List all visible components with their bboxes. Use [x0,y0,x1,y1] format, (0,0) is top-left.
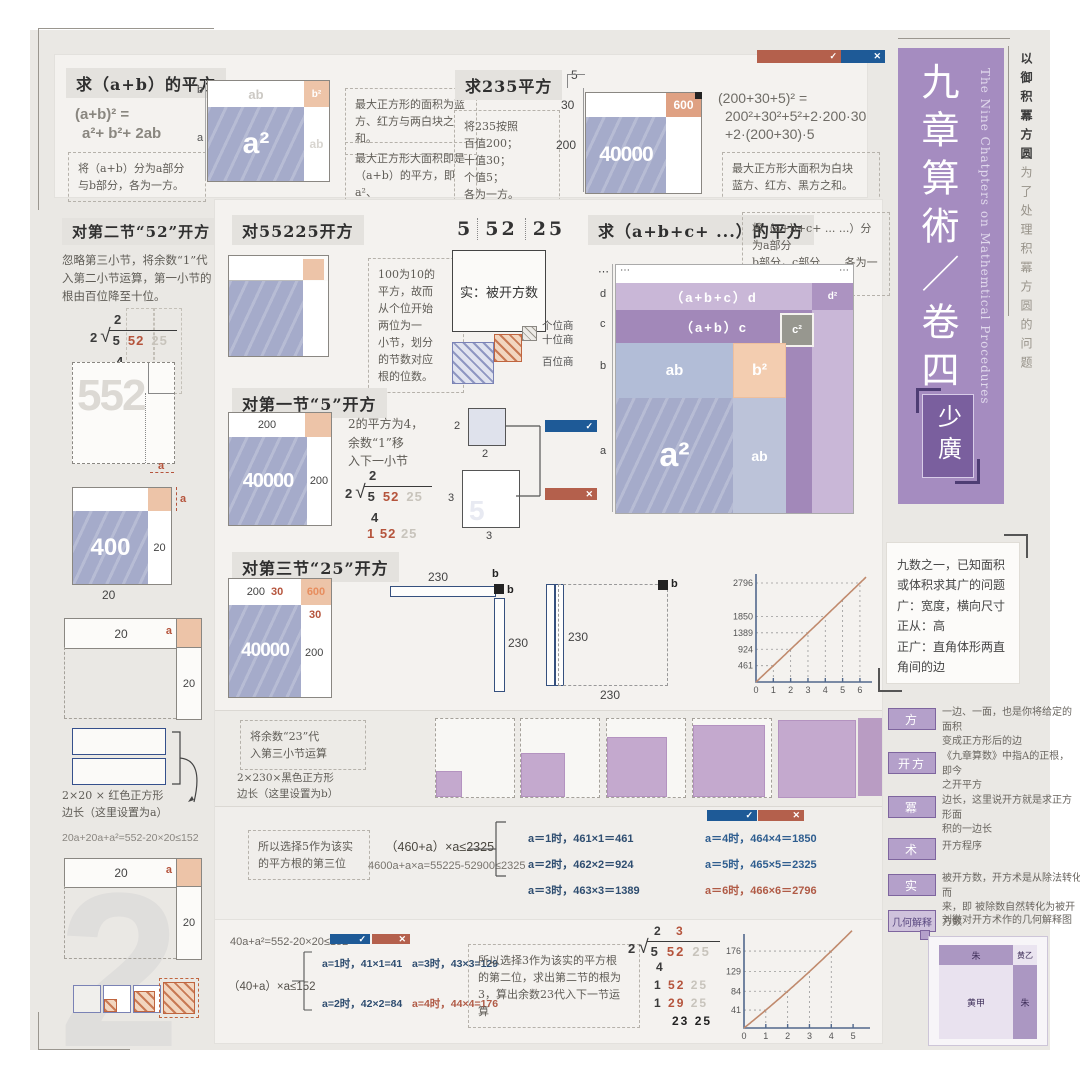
glossary-term: 冪 [905,799,919,816]
division-quotient: 2 [114,312,121,327]
square-235-diagram: 600 40000 [585,92,702,194]
dim-2-bottom: 2 [482,448,488,460]
b2-label: b² [312,89,321,100]
label-a2: a² [659,436,689,475]
formula-ab-1: (a+b)² = [75,106,129,123]
label-bottom-20: 20 [102,588,115,602]
frame-line [1008,46,1009,316]
svg-text:2: 2 [788,685,793,695]
digit-group: 1 [654,996,663,1010]
strip-rect-2 [72,758,166,785]
svg-text:3: 3 [805,685,810,695]
red-cross-bar: ✕ [758,810,804,821]
progress-box-5 [778,720,856,798]
purple-fill [607,737,667,797]
growth-square-4 [163,982,195,1014]
glossary-term: 术 [905,841,919,858]
label-ab-c: （a+b）c [680,317,748,336]
red-hatch-fill [134,991,155,1012]
abc-square-diagram: ⋯ ⋯ （a+b+c）d d² （a+b）c c² ab b² a² ab [615,264,854,514]
progress-box-3 [606,718,686,798]
dots-right: ⋯ [839,265,849,276]
badge-corner [916,388,941,413]
rect-right-col-20: 20 [176,647,202,720]
rect-red-corner [148,488,171,511]
svg-text:41: 41 [731,1005,741,1015]
title-banner: 九章算術／卷四 The Nine Chatpters on Mathemtica… [898,48,1004,504]
tagline-rest: 为了处理积冪方圆的问题 [1019,166,1033,375]
eq-235-line3: +2·(200+30)·5 [725,126,815,142]
label-30: 30 [309,609,321,621]
case-41: a=1时，41×1=41 [322,956,402,971]
frame-line [38,28,214,29]
svg-text:0: 0 [741,1031,746,1041]
shi-label: 实：被开方数 [460,282,538,301]
dim-3: 3 [448,492,454,504]
guang-infobox-text: 九数之一，已知面积 或体积求其广的问题 广：宽度，横向尺寸 正从：高 正广：直角… [887,543,1019,689]
inner-line [148,363,149,393]
division-quotient-3: 3 [676,924,683,938]
ghost-552-square: 552 [72,362,175,464]
note-white-sum: 最大正方形大面积为白块 蓝方、红方、黑方之和。 [722,152,880,202]
tagline-vertical: 以御积冪方圆为了处理积冪方圆的问题 [1018,52,1035,382]
legend-tens-square [494,334,522,362]
dim-line [567,74,568,88]
division-radicand-row: 2 √ 55225 [345,486,432,504]
title-english: The Nine Chatpters on Mathemtical Proced… [978,68,992,408]
gnomon1-vbar [494,598,505,692]
gnomon1-230-top: 230 [428,570,448,584]
ab-right-rect: ab [304,107,329,181]
division-prefix: 2 [90,330,97,345]
division-prefix: 2 [345,486,352,501]
division-remainder-1: 1 52 25 [654,978,708,992]
division-remainder-2: 1 29 25 [654,996,708,1010]
division-remainder-3: 23 25 [672,1014,712,1028]
rect-red-corner [176,618,202,649]
rect-ab-top: ab [616,343,733,398]
division-prefix: 2 [628,941,635,956]
digit-group: 52 [383,489,399,504]
svg-text:1850: 1850 [733,611,753,621]
rect-white-top [229,256,303,281]
dim-a-right: a [180,493,186,505]
note-235-split: 将235按照 百值200； 十值30； 个值5； 各为一方。 [454,110,560,211]
formula-ab-2: a²+ b²+ 2ab [82,125,161,142]
digit-group: 1 [367,526,375,541]
svg-text:0: 0 [753,685,758,695]
rect-top: 200 30 [229,579,301,605]
svg-text:3: 3 [807,1031,812,1041]
digit-group: 25 [691,978,708,992]
gnomon2-bar1 [546,584,555,686]
red-check-bar: ✓ [757,50,841,63]
rect-white-right [666,117,701,193]
glossary-desc-jihe: 刘徽对开方术作的几何解释图 [942,914,1080,929]
rect-white-top [73,488,148,511]
check-icon: ✓ [358,934,366,945]
svg-text:1: 1 [771,685,776,695]
progress-box-1 [435,718,515,798]
digit-group: 25 [692,944,710,959]
guang-infobox: 九数之一，已知面积 或体积求其广的问题 广：宽度，横向尺寸 正从：高 正广：直角… [886,542,1020,684]
dashed-edge [64,886,66,958]
label-ab: ab [751,448,767,464]
cross-icon: ✕ [792,810,800,821]
case-a5: a＝5时，465×5＝2325 [705,856,817,872]
dim-a-line [150,472,174,474]
gnomon2-230-left: 230 [568,630,588,644]
digit-52: 52 [477,218,524,240]
infobox-corner [1004,534,1028,558]
dim-235-30: 30 [561,98,574,112]
svg-text:924: 924 [738,644,753,654]
note-choose-3: 所以选择3作为该实的平方根 的第二位，求出第二节的根为 3，算出余数23代入下一… [468,944,640,1028]
digit-25: 25 [525,218,572,240]
cross-icon: ✕ [585,489,593,500]
section-title-55225: 对55225开方 [232,215,364,245]
label-200: 200 [305,647,323,659]
glossary-term: 开方 [898,755,926,772]
blue-cross-bar: ✕ [841,50,885,63]
inner-line [148,393,174,394]
ghost-552-label: 552 [77,371,144,421]
gnomon1-corner [494,584,504,594]
label-20: 20 [114,627,127,641]
case-bracket-2 [292,950,316,1012]
label-20: 20 [114,866,127,880]
black-corner-square [695,92,702,99]
poster-background: 1 2 3 求（a+b）的平方 (a+b)² = a²+ b²+ 2ab 将（a… [30,30,1050,1050]
label-30: 30 [271,586,283,598]
svg-text:84: 84 [731,986,741,996]
section-title-235: 求235平方 [455,70,562,100]
dim-3-bottom: 3 [486,530,492,542]
case-42: a=2时，42×2=84 [322,996,402,1011]
square-55225-diagram [228,255,329,357]
case-bracket [468,820,508,880]
gnomon2-corner [658,580,668,590]
label-40000: 40000 [243,470,294,493]
division-radicand-row: 2 √ 55225 [90,330,177,348]
square-5-diagram: 200 40000 200 [228,412,332,526]
square-c2: c² [780,313,814,347]
dim-235-200: 200 [556,138,576,152]
digit-group: 52 [380,526,396,541]
digit-5: 5 [450,218,477,240]
rect-top-200: 200 [229,413,305,437]
b2-square: b² [304,81,329,107]
frame-line [898,38,1010,39]
division-subtract: 4 [371,510,378,525]
label-c2: c² [792,324,802,336]
svg-text:461: 461 [738,661,753,671]
watermark-2: 2 [58,860,180,1079]
square-400-diagram: 400 20 [72,487,172,585]
gnomon1-b-top: b [492,568,499,580]
progress-box-6 [858,718,882,796]
check-icon: ✓ [585,421,593,432]
strip-rect-1 [72,728,166,755]
ab-square-diagram: ab b² a² ab [207,80,330,182]
digit-group: 52 [128,333,144,348]
geo-zhu-right: 朱 [1013,965,1037,1039]
shaoguang-badge: 少廣 [922,394,974,478]
legend-units-label: 个位商 [542,318,574,333]
digit-group: 5 [368,489,376,504]
svg-text:4: 4 [829,1031,834,1041]
dashed-edge [64,718,176,720]
label-a: a [166,864,172,876]
growth-square-3 [133,985,161,1013]
label-40000: 40000 [241,640,289,662]
note-choose-5: 所以选择5作为该实 的平方根的第三位 [248,830,370,880]
frame-line [38,1012,39,1050]
svg-text:5: 5 [851,1031,856,1041]
square-b2: b² [733,343,786,398]
dim-a-top: a [158,460,164,472]
shi-box: 实：被开方数 [452,250,546,332]
growth-square-2 [103,985,131,1013]
rect-red-corner [176,858,202,888]
digit-groups-55225: 5 52 25 [450,218,572,240]
rect-40000: 40000 [229,437,307,525]
division-radicand-row: 2 √ 55225 [628,941,720,959]
digit-group: 25 [151,333,167,348]
axis-b: b [600,360,606,372]
svg-text:4: 4 [823,685,828,695]
frame-line [38,28,39,210]
division-quotient: 2 [369,468,376,483]
poster-page: 1 2 3 求（a+b）的平方 (a+b)² = a²+ b²+ 2ab 将（a… [0,0,1080,1079]
note-ab-split: 将（a+b）分为a部分 与b部分，各为一方。 [68,152,206,202]
glossary-desc-mi: 边长，这里说开方就是求正方形面 积的一边长 [942,794,1076,838]
rect-white-right [303,281,328,356]
geo-huang-yi: 黄乙 [1013,945,1037,965]
brace-note: 2×20 × 红色正方形 边长（这里设置为a） [62,787,168,821]
note-52: 忽略第三小节，将余数“1”代 入第二小节运算，第一小节的 根由百位降至十位。 [62,252,224,305]
division-subtract: 4 [656,960,663,974]
glossary-term: 实 [905,877,919,894]
digit-group: 25 [695,1014,712,1028]
red-cross-bar: ✕ [372,934,410,944]
label-600: 600 [307,586,325,598]
square-root-growth-chart-1: 4619241389185027960123456 [722,566,874,698]
digit-group: 1 [654,978,663,992]
gnomon1-230-right: 230 [508,636,528,650]
ghost-5: 5 [469,495,485,527]
geo-zhu-top: 朱 [939,945,1013,965]
cross-icon: ✕ [873,51,881,62]
axis-line [612,264,613,512]
glossary-badge-shu: 术 [888,838,936,860]
red-cross-bar: ✕ [545,488,597,500]
inner-dotted-line [145,393,147,463]
glossary-term: 方 [905,711,919,728]
glossary-desc-fang: 一边、一面，也是你将给定的面积 变成正方形后的边 [942,706,1076,750]
label-abc-d: （a+b+c）d [670,287,758,306]
long-division-5: 2 2 √ 55225 4 1 52 25 [345,468,465,548]
glossary-desc-shu: 开方程序 [942,840,1076,855]
label-ab: ab [666,362,684,379]
candidate-square-2 [468,408,506,446]
purple-fill [436,771,462,797]
axis-d: d [600,288,606,300]
blue-check-bar: ✓ [545,420,597,432]
square-25-diagram: 200 30 600 40000 30 200 [228,578,332,698]
svg-text:6: 6 [857,685,862,695]
ineq-552: 20a+20a+a²=552-20×20≤152 [62,832,199,844]
purple-fill [693,725,765,797]
rect-red-corner [303,259,324,280]
label-a: a [166,625,172,637]
label-200: 200 [247,586,265,598]
progress-box-2 [520,718,600,798]
rect-blue-main [229,281,303,356]
label-600: 600 [673,98,693,112]
dim-235-5: 5 [571,68,578,82]
legend-hundreds-square [452,342,494,384]
dim-label-b: b [197,84,203,96]
dim-line [567,74,585,75]
badge-corner [955,459,980,484]
rect-40000: 40000 [586,117,666,193]
axis-dots: ⋯ [598,265,609,278]
division-quotient-2: 2 [654,924,661,938]
dashed-edge [64,958,176,960]
rect-right-200: 200 [307,437,331,525]
rect-top-20: 20a [64,858,178,888]
check-icon: ✓ [745,810,753,821]
digit-group: 5 [651,944,660,959]
glossary-desc-kaifang: 《九章算数》中指A的正根，即今 之开平方 [942,750,1076,794]
section-title-52: 对第二节“52”开方 [62,218,220,245]
gnomon1-hbar [390,586,496,597]
red-hatch-fill [104,999,117,1012]
geo-huang-jia: 黄甲 [939,965,1013,1039]
rect-40000: 40000 [229,605,301,697]
label-d2: d² [828,291,837,302]
brace-arrow [168,728,214,808]
dim-line [583,88,584,192]
legend-tens-label: 十位商 [542,332,574,347]
square-d2: d² [812,283,853,310]
digit-group: 25 [401,526,417,541]
glossary-badge-kaifang: 开方 [888,752,936,774]
strip-d-vertical [812,310,853,513]
svg-text:1: 1 [763,1031,768,1041]
svg-text:2796: 2796 [733,578,753,588]
infobox-corner [878,668,902,692]
svg-text:129: 129 [726,967,741,977]
ab-top-rect: ab [208,81,304,107]
glossary-badge-mi: 冪 [888,796,936,818]
rect-top-20: 20a [64,618,178,649]
a2-label: a² [243,127,270,161]
check-icon: ✓ [829,51,837,62]
digit-group: 23 [672,1014,689,1028]
svg-text:176: 176 [726,946,741,956]
eq-235-line2: 200²+30²+5²+2·200·30 [725,108,866,124]
dim-2: 2 [454,420,460,432]
purple-fill [521,753,565,797]
digit-group: 52 [668,978,685,992]
gnomon2-230-bottom: 230 [600,688,620,702]
glossary-badge-shi: 实 [888,874,936,896]
label-40000: 40000 [599,143,652,167]
digit-group: 5 [113,333,121,348]
division-remainder: 1 52 25 [367,526,417,541]
case-a2: a＝2时，462×2＝924 [528,856,633,872]
rect-white-top [586,93,666,117]
eq-235-line1: (200+30+5)² = [718,90,807,106]
digit-group: 25 [691,996,708,1010]
bracket-lines [506,422,542,502]
case-a3: a＝3时，463×3＝1389 [528,882,640,898]
square-root-growth-chart-2: 4184129176012345 [716,926,872,1044]
dots-left: ⋯ [620,265,630,276]
glossary-badge-jihe: 几何解释 [888,910,936,932]
rect-right-col-20: 20 [176,886,202,960]
case-a6: a＝6时，466×6＝2796 [705,882,817,898]
rect-ab-right: ab [733,398,786,513]
axis-c: c [600,318,606,330]
glossary-term: 几何解释 [892,914,932,929]
note-2x230: 2×230×黑色正方形 边长（这里设置为b） [237,770,338,803]
rect-400: 400 [73,511,148,584]
legend-hundreds-label: 百位商 [542,354,574,369]
digit-group: 29 [668,996,685,1010]
dim-line [205,80,206,180]
case-a4: a＝4时，464×4＝1850 [705,830,817,846]
blue-check-bar: ✓ [707,810,757,821]
note-square-of-2: 2的平方为4， 余数“1”移 入下一小节 [348,415,440,471]
geo-diagram: 朱 黄乙 黄甲 朱 [928,936,1048,1046]
axis-a: a [600,445,606,457]
digit-group: 52 [667,944,685,959]
svg-text:2: 2 [785,1031,790,1041]
cross-icon: ✕ [398,934,406,945]
gnomon2-b: b [671,578,678,590]
strip-c-vertical [786,343,812,513]
gnomon1-b-right: b [507,584,514,596]
a2-square: a² [208,107,304,181]
glossary-badge-fang: 方 [888,708,936,730]
label-b2: b² [752,362,767,380]
progress-box-4 [692,718,772,798]
rect-red-corner [305,413,331,437]
rect-right: 30 200 [301,605,331,697]
strip-abc-d: （a+b+c）d [616,283,812,310]
note-100-square: 100为10的 平方，故而 从个位开始 两位为一 小节，划分 的节数对应 根的位… [368,258,464,393]
svg-text:1389: 1389 [733,628,753,638]
case-a1: a＝1时，461×1＝461 [528,830,633,846]
rect-600: 600 [301,579,331,605]
growth-square-1 [73,985,101,1013]
square-a2: a² [616,398,733,513]
note-remainder-23: 将余数“23”代 入第三小节运算 [240,720,366,770]
dashed-edge [64,647,66,718]
dim-a-line [176,487,178,511]
dim-label-a: a [197,132,203,144]
label-400: 400 [90,534,130,562]
svg-text:5: 5 [840,685,845,695]
rect-right-20: 20 [148,511,171,584]
tagline-bold: 以御积冪方圆 [1019,52,1033,166]
digit-group: 25 [406,489,422,504]
legend-units-square [522,326,537,341]
blue-check-bar: ✓ [330,934,370,944]
